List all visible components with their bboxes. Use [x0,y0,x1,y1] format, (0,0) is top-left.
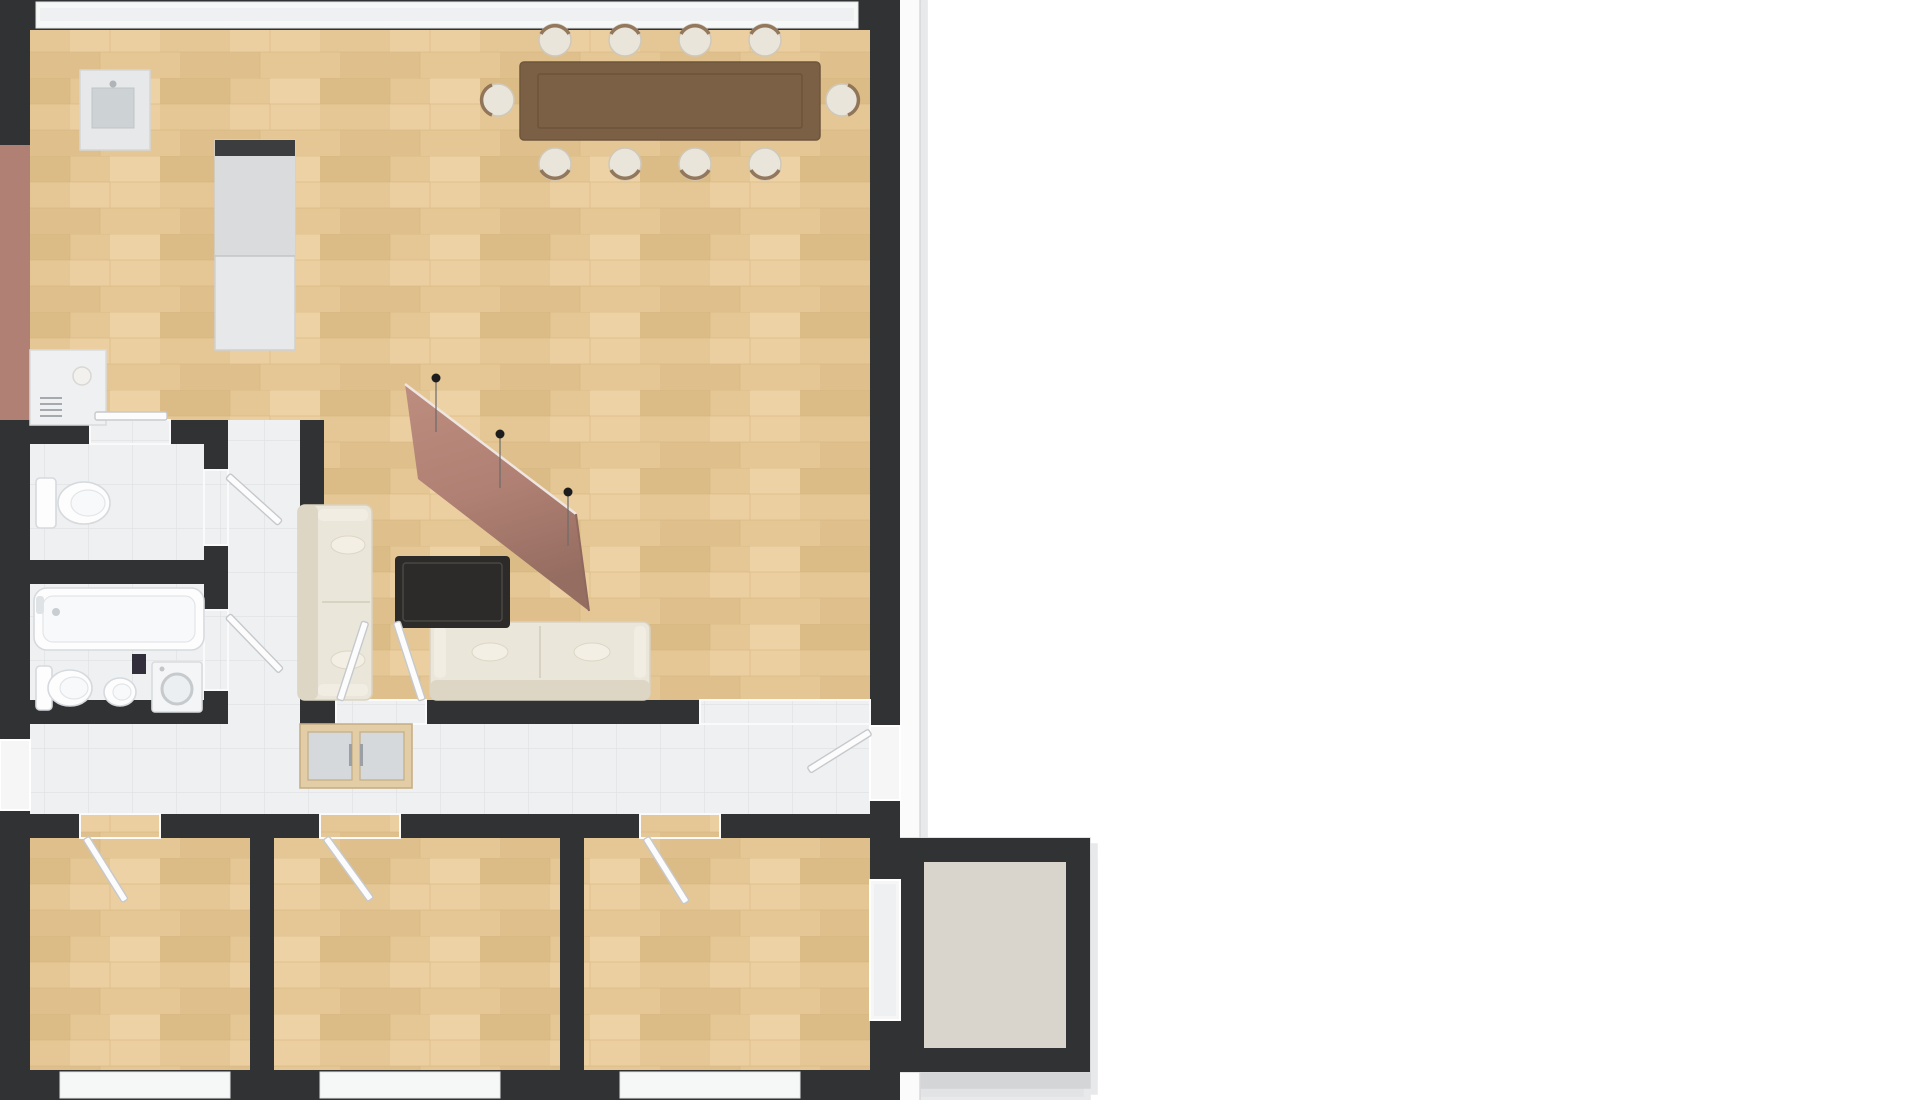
living-hall-passage [700,700,870,724]
balcony-walls [912,850,1078,1060]
hallway-floor [30,724,870,814]
shower-mixer [36,596,44,614]
coffee-table [395,556,510,628]
sofa-long [298,505,372,700]
wc-group [36,478,110,528]
floorplan-scene [0,0,1920,1080]
bedroom-west-door-opening [80,814,160,838]
bedroom-middle-door-opening [320,814,400,838]
bedroom-west-floor [30,838,250,1070]
bedroom-east-floor [584,838,870,1070]
trash-bin [132,654,146,674]
kitchen-sink [92,88,134,128]
bathroom-group [34,588,204,712]
kitchen-tall-cabinets [215,140,295,350]
bedroom-east-door-opening [640,814,720,838]
floors [30,30,870,1070]
wc-sliding-door [95,412,167,420]
bathtub [34,588,204,650]
accent-wall-base [0,145,30,420]
corridor-floor [228,420,300,724]
bidet [104,678,136,706]
washing-machine [152,662,202,712]
faucet [110,81,117,88]
living-double-door-opening [336,700,426,724]
floorplan-page [0,0,1920,1080]
sofa-short [430,622,650,700]
floorplan-canvas[interactable] [0,0,1150,1100]
dining-table [520,62,820,140]
hall-east-door-opening [870,726,900,800]
wc-toilet [36,478,110,528]
wardrobe [300,724,412,788]
entrance-door-opening [0,740,30,810]
wc-door-opening [204,470,228,545]
bathroom-door-opening [204,610,228,690]
bedroom-middle-floor [274,838,560,1070]
kitchen-sink-cabinet [80,70,150,150]
table-lamp [73,367,91,385]
bath-drain [52,608,60,616]
